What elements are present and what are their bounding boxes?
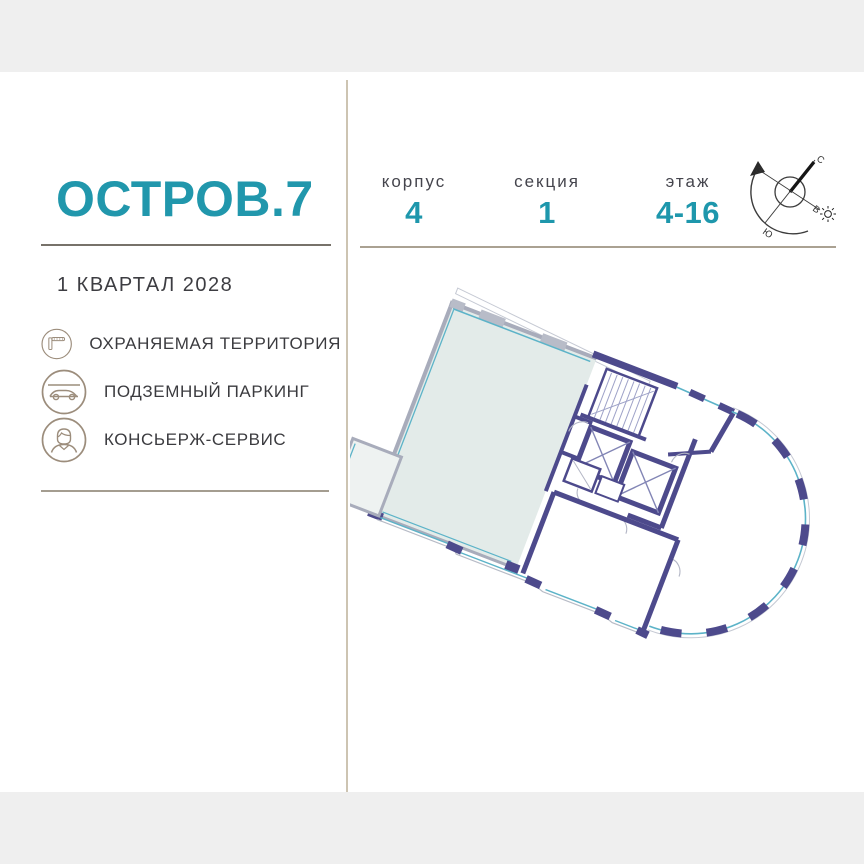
field-value: 4 [349,195,479,231]
amenity-label: КОНСЬЕРЖ-СЕРВИС [104,430,286,450]
vertical-divider [346,80,348,792]
amenities-divider [41,490,329,492]
amenity-underground-parking: ПОДЗЕМНЫЙ ПАРКИНГ [41,368,341,416]
floor-plan [350,282,850,672]
amenities-list: ОХРАНЯЕМАЯ ТЕРРИТОРИЯ ПОДЗЕМНЫЙ ПАРКИНГ … [41,320,341,464]
amenity-label: ПОДЗЕМНЫЙ ПАРКИНГ [104,382,309,402]
amenity-label: ОХРАНЯЕМАЯ ТЕРРИТОРИЯ [89,334,341,354]
amenity-concierge: КОНСЬЕРЖ-СЕРВИС [41,416,341,464]
top-letterbox-band [0,0,864,72]
field-label: этаж [623,172,753,192]
field-value: 1 [482,195,612,231]
car-icon [41,369,87,415]
bottom-letterbox-band [0,792,864,864]
sun-icon [820,206,836,222]
field-value: 4-16 [623,195,753,231]
compass-north-label: С [814,154,826,167]
field-building: корпус 4 [349,172,479,231]
amenity-guarded-territory: ОХРАНЯЕМАЯ ТЕРРИТОРИЯ [41,320,341,368]
barrier-icon [41,321,72,367]
concierge-icon [41,417,87,463]
field-floor: этаж 4-16 [623,172,753,231]
field-section: секция 1 [482,172,612,231]
compass-icon: С З Ю В [738,150,842,244]
field-label: корпус [349,172,479,192]
delivery-quarter: 1 КВАРТАЛ 2028 [57,274,233,297]
field-label: секция [482,172,612,192]
project-logo: ОСТРОВ.7 [56,170,336,228]
floorplan-card: ОСТРОВ.7 1 КВАРТАЛ 2028 ОХРАНЯЕМАЯ ТЕРРИ… [0,0,864,864]
header-divider [360,246,836,248]
logo-divider [41,244,331,246]
